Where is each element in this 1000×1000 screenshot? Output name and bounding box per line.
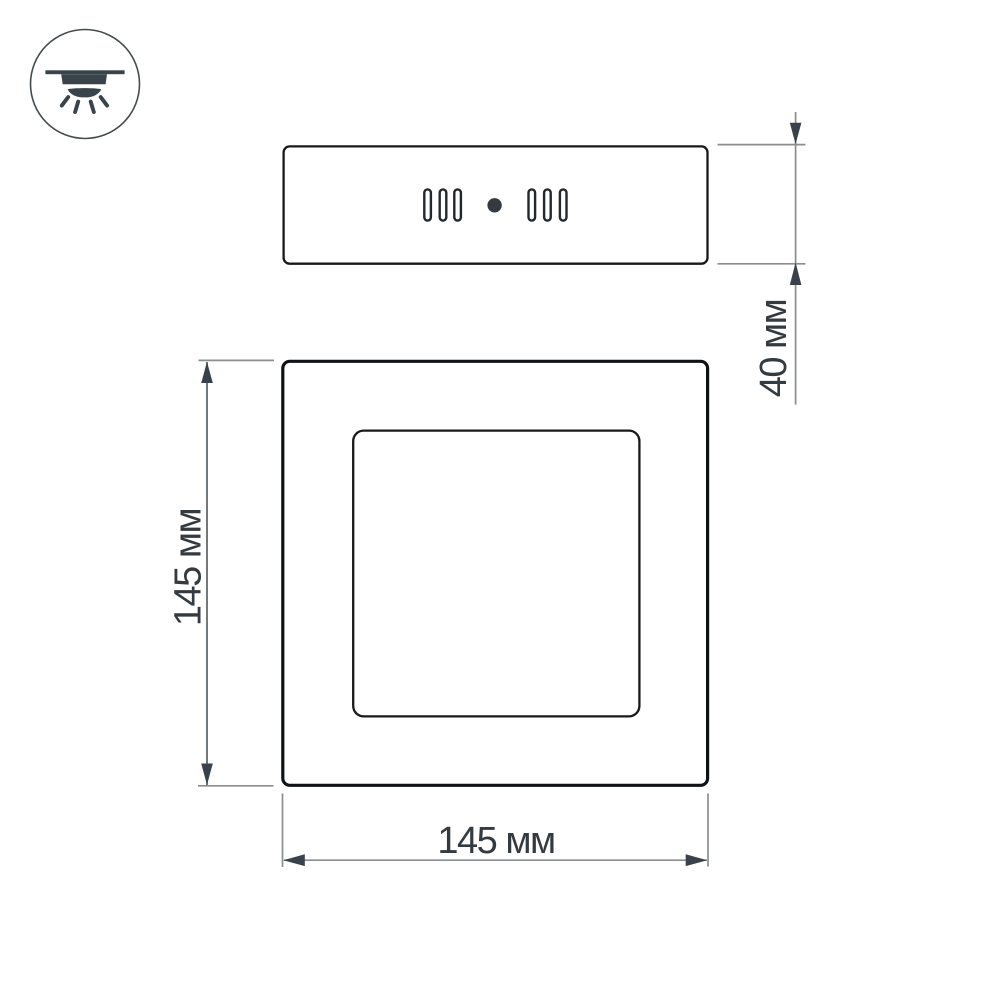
svg-text:145 мм: 145 мм	[168, 509, 210, 626]
svg-text:40 мм: 40 мм	[753, 300, 795, 398]
svg-text:145 мм: 145 мм	[437, 820, 554, 862]
